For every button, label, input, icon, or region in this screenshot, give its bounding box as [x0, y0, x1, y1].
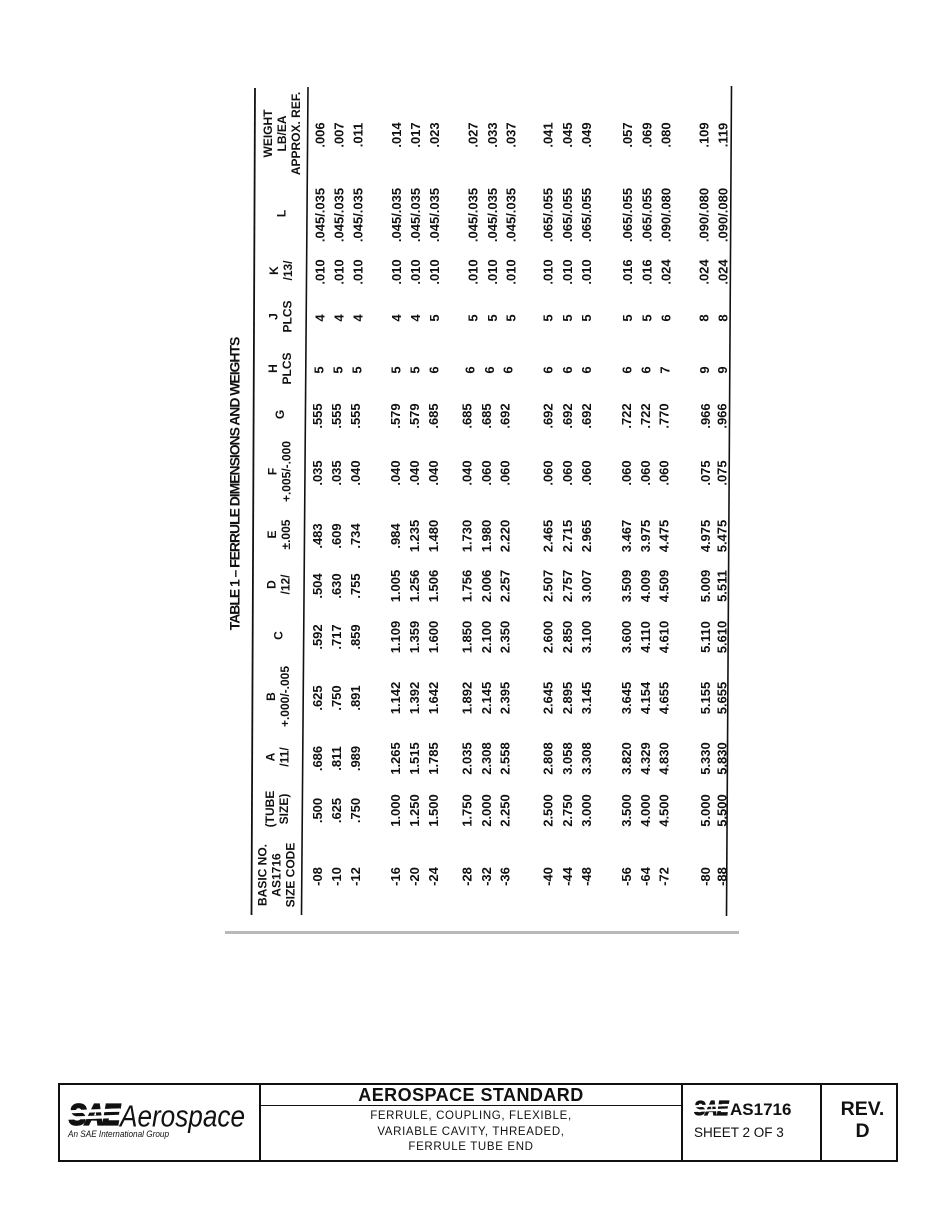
svg-text:1.142: 1.142 [388, 682, 403, 715]
svg-text:1.892: 1.892 [459, 682, 474, 715]
svg-text:5: 5 [330, 366, 345, 373]
svg-text:.630: .630 [329, 573, 344, 598]
svg-text:-28: -28 [459, 867, 474, 886]
svg-text:4.509: 4.509 [656, 570, 671, 603]
svg-text:-80: -80 [698, 867, 713, 886]
svg-text:-20: -20 [407, 867, 422, 886]
svg-text:H: H [266, 364, 280, 373]
svg-text:4.009: 4.009 [638, 570, 653, 603]
svg-text:.500: .500 [310, 798, 325, 823]
svg-text:.722: .722 [638, 403, 653, 428]
svg-text:2.600: 2.600 [540, 621, 555, 654]
svg-text:2.100: 2.100 [479, 621, 494, 654]
svg-text:.750: .750 [329, 685, 344, 710]
svg-text:.041: .041 [540, 122, 555, 147]
svg-text:6: 6 [560, 366, 575, 373]
svg-text:.685: .685 [479, 403, 494, 428]
svg-text:2.000: 2.000 [479, 794, 494, 827]
svg-text:5: 5 [349, 366, 364, 373]
svg-text:.065/.055: .065/.055 [639, 188, 654, 242]
svg-text:2.220: 2.220 [497, 520, 512, 553]
svg-text:4: 4 [312, 314, 327, 322]
svg-text:C: C [271, 631, 285, 640]
svg-text:.483: .483 [310, 523, 325, 548]
svg-text:1.600: 1.600 [426, 621, 441, 654]
svg-text:.717: .717 [329, 624, 344, 649]
svg-text:4: 4 [408, 314, 423, 322]
svg-text:.060: .060 [540, 460, 555, 485]
svg-text:.692: .692 [579, 403, 594, 428]
svg-text:3.500: 3.500 [619, 794, 634, 827]
svg-text:PLCS: PLCS [280, 352, 294, 384]
svg-text:-72: -72 [656, 867, 671, 886]
svg-text:.016: .016 [639, 259, 654, 284]
svg-text:.045/.035: .045/.035 [350, 188, 365, 242]
svg-text:WEIGHT: WEIGHT [261, 109, 275, 158]
svg-text:AS1716: AS1716 [270, 853, 284, 897]
svg-text:.040: .040 [426, 460, 441, 485]
svg-text:B: B [264, 692, 278, 701]
svg-text:.010: .010 [579, 259, 594, 284]
svg-text:.625: .625 [310, 685, 325, 710]
svg-text:2.895: 2.895 [560, 682, 575, 715]
svg-text:4: 4 [331, 314, 346, 322]
svg-text:2.006: 2.006 [479, 570, 494, 603]
svg-text:1.756: 1.756 [459, 570, 474, 603]
svg-text:2.715: 2.715 [560, 520, 575, 553]
svg-text:5.330: 5.330 [698, 742, 713, 775]
svg-text:3.058: 3.058 [560, 742, 575, 775]
svg-text:SHEET 2 OF 3: SHEET 2 OF 3 [694, 1125, 784, 1140]
svg-text:.010: .010 [560, 259, 575, 284]
svg-text:.045/.035: .045/.035 [312, 188, 327, 242]
svg-text:4.975: 4.975 [698, 520, 713, 553]
svg-text:-36: -36 [497, 867, 512, 886]
svg-text:1.250: 1.250 [407, 794, 422, 827]
svg-text:.060: .060 [479, 460, 494, 485]
svg-text:.010: .010 [350, 259, 365, 284]
svg-text:-16: -16 [388, 867, 403, 886]
svg-text:.555: .555 [348, 403, 363, 428]
svg-text:-24: -24 [426, 866, 441, 886]
svg-text:1.235: 1.235 [407, 520, 422, 553]
svg-text:.035: .035 [329, 460, 344, 485]
svg-text:APPROX. REF.: APPROX. REF. [289, 92, 303, 175]
svg-text:.011: .011 [350, 123, 365, 148]
svg-text:5.655: 5.655 [714, 682, 729, 715]
svg-text:6: 6 [482, 366, 497, 373]
svg-text:.045/.035: .045/.035 [503, 188, 518, 242]
svg-text:.024: .024 [658, 259, 673, 285]
svg-text:2.965: 2.965 [579, 520, 594, 553]
svg-text:8: 8 [715, 314, 730, 321]
svg-text:A: A [263, 752, 277, 761]
svg-text:4: 4 [350, 314, 365, 322]
svg-text:.035: .035 [310, 460, 325, 485]
svg-text:2.645: 2.645 [540, 682, 555, 715]
svg-text:1.359: 1.359 [407, 621, 422, 654]
svg-text:.625: .625 [329, 798, 344, 823]
svg-text:F: F [265, 468, 279, 475]
svg-text:.045/.035: .045/.035 [465, 188, 480, 242]
svg-text:.010: .010 [389, 259, 404, 284]
svg-text:.006: .006 [312, 122, 327, 147]
svg-text:5: 5 [311, 366, 326, 373]
svg-text:.080: .080 [658, 122, 673, 147]
svg-text:1.000: 1.000 [388, 794, 403, 827]
svg-text:SIZE): SIZE) [277, 794, 291, 825]
svg-text:.007: .007 [331, 122, 346, 147]
svg-text:.891: .891 [348, 685, 363, 710]
svg-text:.024: .024 [696, 259, 711, 285]
svg-text:.579: .579 [388, 403, 403, 428]
svg-text:.040: .040 [407, 460, 422, 485]
svg-text:5: 5 [427, 314, 442, 321]
svg-text:.069: .069 [639, 122, 654, 147]
svg-text:4.475: 4.475 [656, 520, 671, 553]
svg-text:.010: .010 [503, 259, 518, 284]
svg-text:3.600: 3.600 [619, 621, 634, 654]
svg-text:1.515: 1.515 [407, 742, 422, 775]
svg-text:.040: .040 [388, 460, 403, 485]
svg-text:3.820: 3.820 [619, 742, 634, 775]
svg-text:1.256: 1.256 [407, 570, 422, 603]
svg-text:E: E [265, 530, 279, 538]
svg-text:An SAE International Group: An SAE International Group [67, 1129, 169, 1139]
svg-text:1.750: 1.750 [459, 794, 474, 827]
svg-text:.010: .010 [427, 259, 442, 284]
svg-text:-40: -40 [540, 867, 555, 886]
svg-text:TABLE 1 – FERRULE DIMENSIONS A: TABLE 1 – FERRULE DIMENSIONS AND WEIGHTS [227, 337, 243, 630]
svg-text:.755: .755 [348, 573, 363, 598]
svg-text:.555: .555 [310, 403, 325, 428]
svg-text:4.655: 4.655 [656, 682, 671, 715]
svg-text:.010: .010 [331, 259, 346, 284]
svg-text:5: 5 [540, 314, 555, 321]
svg-text:.075: .075 [698, 460, 713, 485]
svg-text:5: 5 [579, 314, 594, 321]
svg-text:.060: .060 [560, 460, 575, 485]
svg-text:.060: .060 [656, 460, 671, 485]
svg-text:.966: .966 [698, 403, 713, 428]
svg-text:.734: .734 [348, 523, 363, 549]
svg-text:2.395: 2.395 [497, 682, 512, 715]
svg-text:7: 7 [658, 366, 673, 373]
svg-text:AS1716: AS1716 [730, 1100, 791, 1119]
svg-text:5: 5 [560, 314, 575, 321]
svg-text:+.000/-.005: +.000/-.005 [278, 666, 292, 727]
svg-text:1.480: 1.480 [426, 520, 441, 553]
svg-text:5.511: 5.511 [714, 570, 729, 602]
svg-text:5: 5 [465, 314, 480, 321]
svg-text:3.509: 3.509 [619, 570, 634, 603]
svg-text:4.154: 4.154 [638, 681, 653, 714]
svg-text:2.308: 2.308 [479, 742, 494, 775]
svg-text:2.035: 2.035 [459, 742, 474, 775]
svg-text:5: 5 [408, 366, 423, 373]
svg-text:.017: .017 [408, 122, 423, 147]
svg-text:.037: .037 [503, 122, 518, 147]
svg-text:6: 6 [463, 366, 478, 373]
svg-text:K: K [267, 266, 281, 275]
svg-text:-12: -12 [348, 867, 363, 886]
svg-text:4.329: 4.329 [638, 742, 653, 775]
svg-text:4: 4 [389, 314, 404, 322]
svg-text:6: 6 [579, 366, 594, 373]
svg-text:1.642: 1.642 [426, 682, 441, 715]
svg-text:3.100: 3.100 [579, 621, 594, 654]
svg-text:-10: -10 [329, 867, 344, 886]
svg-text:.609: .609 [329, 523, 344, 548]
svg-text:-32: -32 [479, 867, 494, 886]
svg-text:.065/.055: .065/.055 [579, 188, 594, 242]
svg-text:PLCS: PLCS [281, 300, 295, 332]
svg-text:2.850: 2.850 [560, 621, 575, 654]
svg-text:5.155: 5.155 [698, 682, 713, 715]
svg-text:.579: .579 [407, 403, 422, 428]
svg-text:.045/.035: .045/.035 [408, 188, 423, 242]
svg-text:±.005: ±.005 [279, 519, 293, 549]
svg-text:2.500: 2.500 [540, 794, 555, 827]
svg-text:.065/.055: .065/.055 [540, 188, 555, 242]
svg-text:-48: -48 [579, 867, 594, 886]
svg-text:.045/.035: .045/.035 [389, 188, 404, 242]
svg-text:3.645: 3.645 [619, 682, 634, 715]
svg-text:.984: .984 [388, 523, 403, 549]
svg-text:D: D [265, 580, 279, 589]
svg-text:.040: .040 [459, 460, 474, 485]
svg-text:1.392: 1.392 [407, 682, 422, 715]
svg-text:.060: .060 [579, 460, 594, 485]
svg-text:6: 6 [501, 366, 516, 373]
svg-text:5.009: 5.009 [698, 570, 713, 603]
svg-text:3.467: 3.467 [619, 520, 634, 553]
svg-text:5: 5 [620, 314, 635, 321]
svg-text:.685: .685 [460, 403, 475, 428]
svg-text:/11/: /11/ [277, 747, 291, 767]
svg-text:5: 5 [485, 314, 500, 321]
svg-text:.692: .692 [498, 403, 513, 428]
svg-text:.090/.080: .090/.080 [715, 188, 730, 242]
svg-text:.060: .060 [638, 460, 653, 485]
svg-text:5.475: 5.475 [714, 520, 729, 553]
svg-text:5: 5 [503, 314, 518, 321]
svg-text:.109: .109 [696, 122, 711, 147]
svg-text:4.000: 4.000 [638, 794, 653, 827]
svg-text:.045/.035: .045/.035 [485, 188, 500, 242]
svg-text:L: L [274, 210, 288, 217]
svg-text:BASIC NO.: BASIC NO. [256, 844, 270, 906]
svg-text:.685: .685 [426, 403, 441, 428]
svg-text:2.507: 2.507 [540, 570, 555, 603]
svg-text:1.005: 1.005 [388, 570, 403, 603]
svg-text:2.750: 2.750 [560, 794, 575, 827]
svg-text:5.610: 5.610 [714, 621, 729, 654]
svg-text:.692: .692 [540, 403, 555, 428]
svg-text:4.610: 4.610 [656, 621, 671, 654]
svg-text:.024: .024 [715, 259, 730, 285]
svg-text:.686: .686 [310, 746, 325, 771]
svg-text:1.265: 1.265 [388, 742, 403, 775]
svg-text:.770: .770 [657, 403, 672, 428]
svg-text:3.007: 3.007 [579, 570, 594, 603]
svg-text:-88: -88 [714, 867, 729, 886]
svg-text:5.830: 5.830 [714, 742, 729, 775]
svg-text:.010: .010 [408, 259, 423, 284]
svg-text:J: J [267, 313, 281, 320]
svg-text:/13/: /13/ [281, 260, 295, 281]
svg-text:3.308: 3.308 [579, 742, 594, 775]
svg-text:5: 5 [389, 366, 404, 373]
svg-text:.065/.055: .065/.055 [560, 188, 575, 242]
svg-text:.040: .040 [348, 460, 363, 485]
svg-text:.014: .014 [389, 122, 404, 148]
svg-text:(TUBE: (TUBE [263, 791, 277, 828]
svg-text:3.975: 3.975 [638, 520, 653, 553]
svg-text:-56: -56 [619, 867, 634, 886]
svg-text:.592: .592 [310, 624, 325, 649]
svg-text:.010: .010 [312, 259, 327, 284]
svg-text:8: 8 [696, 314, 711, 321]
svg-text:2.250: 2.250 [497, 794, 512, 827]
svg-text:5: 5 [639, 314, 654, 321]
svg-text:1.850: 1.850 [459, 621, 474, 654]
svg-text:.090/.080: .090/.080 [658, 188, 673, 242]
svg-text:.060: .060 [619, 460, 634, 485]
svg-text:.065/.055: .065/.055 [620, 188, 635, 242]
svg-text:.016: .016 [620, 259, 635, 284]
svg-text:1.506: 1.506 [426, 570, 441, 603]
svg-text:2.465: 2.465 [540, 520, 555, 553]
svg-text:.859: .859 [348, 624, 363, 649]
svg-text:.966: .966 [714, 403, 729, 428]
svg-text:3.000: 3.000 [579, 794, 594, 827]
svg-text:-64: -64 [638, 866, 653, 886]
svg-text:4.110: 4.110 [638, 621, 653, 653]
svg-text:/12/: /12/ [279, 574, 293, 595]
svg-text:5.110: 5.110 [698, 621, 713, 653]
svg-text:5.500: 5.500 [714, 794, 729, 827]
svg-text:.023: .023 [427, 122, 442, 147]
svg-text:2.350: 2.350 [497, 621, 512, 654]
svg-text:2.257: 2.257 [497, 570, 512, 603]
svg-text:.057: .057 [620, 122, 635, 147]
svg-text:2.808: 2.808 [540, 742, 555, 775]
svg-text:+.005/-.000: +.005/-.000 [279, 441, 293, 502]
svg-text:3.145: 3.145 [579, 682, 594, 715]
svg-text:.010: .010 [465, 259, 480, 284]
svg-text:6: 6 [658, 314, 673, 321]
svg-text:.033: .033 [485, 122, 500, 147]
svg-text:LB/EA: LB/EA [275, 115, 289, 151]
svg-text:1.109: 1.109 [388, 621, 403, 654]
svg-text:.722: .722 [619, 403, 634, 428]
svg-text:.555: .555 [329, 403, 344, 428]
svg-text:.045/.035: .045/.035 [331, 188, 346, 242]
svg-text:.049: .049 [579, 122, 594, 147]
svg-text:.010: .010 [540, 259, 555, 284]
svg-text:6: 6 [540, 366, 555, 373]
svg-text:.010: .010 [485, 259, 500, 284]
svg-text:5.000: 5.000 [698, 794, 713, 827]
svg-text:2.145: 2.145 [479, 682, 494, 715]
svg-text:1.730: 1.730 [459, 520, 474, 553]
svg-text:6: 6 [620, 366, 635, 373]
svg-text:G: G [273, 410, 287, 419]
svg-text:-08: -08 [310, 867, 325, 886]
svg-text:6: 6 [427, 366, 442, 373]
svg-text:2.558: 2.558 [497, 742, 512, 775]
svg-text:1.980: 1.980 [479, 520, 494, 553]
svg-text:1.785: 1.785 [426, 742, 441, 775]
svg-text:9: 9 [697, 366, 712, 373]
svg-text:2.757: 2.757 [560, 570, 575, 603]
svg-text:9: 9 [715, 366, 730, 373]
svg-text:1.500: 1.500 [426, 794, 441, 827]
svg-text:.060: .060 [497, 460, 512, 485]
svg-text:SIZE CODE: SIZE CODE [284, 843, 298, 908]
svg-text:.504: .504 [310, 573, 325, 599]
svg-text:.119: .119 [715, 123, 730, 148]
svg-text:4.830: 4.830 [656, 742, 671, 775]
svg-text:-44: -44 [560, 866, 575, 886]
svg-text:.989: .989 [348, 746, 363, 771]
svg-text:.090/.080: .090/.080 [696, 188, 711, 242]
svg-text:6: 6 [639, 366, 654, 373]
svg-text:.045: .045 [560, 122, 575, 147]
svg-text:.750: .750 [348, 798, 363, 823]
svg-text:.075: .075 [714, 460, 729, 485]
svg-text:.045/.035: .045/.035 [427, 188, 442, 242]
svg-text:.027: .027 [465, 122, 480, 147]
svg-text:.692: .692 [560, 403, 575, 428]
svg-text:.811: .811 [329, 746, 344, 771]
svg-text:4.500: 4.500 [656, 794, 671, 827]
